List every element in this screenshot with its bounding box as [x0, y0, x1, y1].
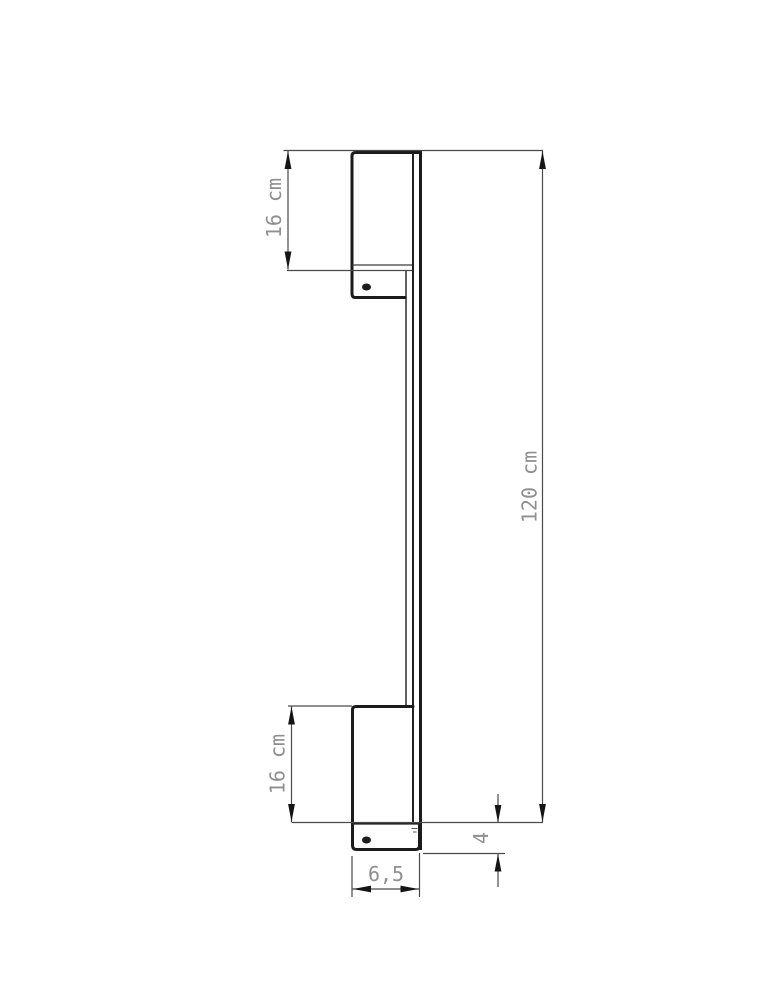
lamp-profile [287, 151, 421, 850]
dimension-bottom-bracket-height: 16 cm [266, 706, 353, 823]
dim-label-top-bracket: 16 cm [262, 178, 286, 238]
dimension-foot-height: 4 [423, 794, 505, 887]
dim-label-foot-height: 4 [469, 832, 493, 844]
arrow-down-icon [495, 805, 502, 823]
bottom-wall-bracket [352, 707, 420, 850]
dim-label-total-height: 120 cm [518, 451, 542, 523]
arrow-down-icon [288, 804, 295, 822]
arrow-up-icon [285, 151, 292, 169]
top-screw-hole [362, 284, 371, 291]
lamp-dimension-diagram: 16 cm 120 cm 16 cm 4 [0, 0, 774, 1000]
technical-drawing-canvas: 16 cm 120 cm 16 cm 4 [0, 0, 774, 1000]
dimension-top-bracket-height: 16 cm [262, 151, 291, 270]
arrow-left-icon [353, 886, 371, 893]
arrow-up-icon [288, 707, 295, 725]
bottom-bracket-outline [353, 707, 420, 850]
dim-label-bottom-bracket: 16 cm [266, 734, 290, 794]
top-bracket-outline [352, 153, 420, 298]
arrow-up-icon [495, 854, 502, 872]
top-wall-bracket [287, 153, 420, 298]
arrow-up-icon [539, 151, 546, 169]
arrow-down-icon [539, 804, 546, 822]
dim-label-bracket-depth: 6,5 [368, 862, 404, 886]
arrow-right-icon [401, 886, 419, 893]
dimension-bracket-depth: 6,5 [352, 853, 420, 897]
dimension-total-height: 120 cm [518, 151, 546, 823]
lamp-bar [406, 151, 421, 850]
arrow-down-icon [285, 252, 292, 270]
bottom-screw-hole [362, 837, 371, 844]
